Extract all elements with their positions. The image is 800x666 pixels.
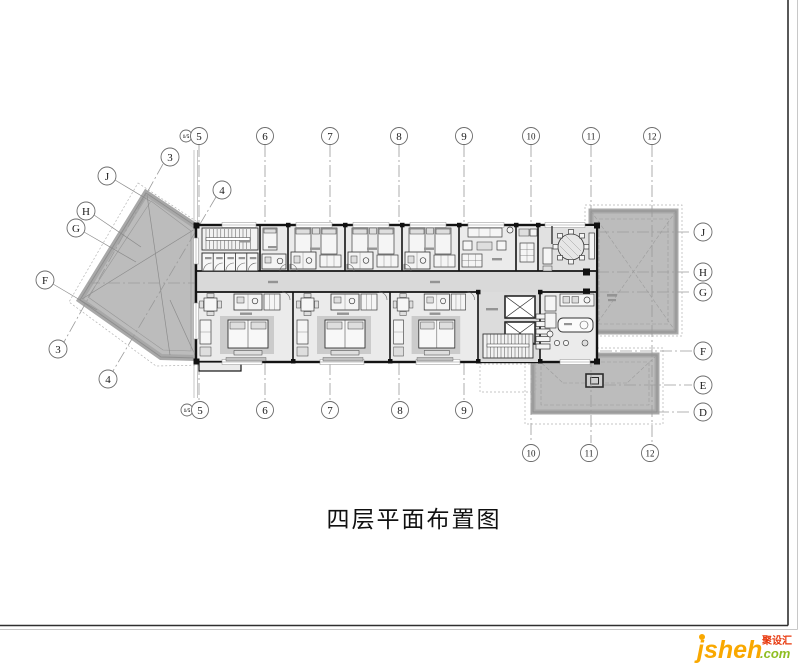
sofa <box>545 313 556 328</box>
svg-text:F: F <box>700 346 706 358</box>
floor-plan-canvas: 1/5 5 6 7 8 9 10 11 12 1/5 5 6 7 8 9 10 … <box>0 0 800 666</box>
watermark-logo: jsheh <box>694 636 762 664</box>
axis-bubble-top-10: 10 <box>523 128 540 145</box>
axis-bubble-right-H: H <box>694 263 712 281</box>
stair-left <box>202 228 258 250</box>
axis-bubble-bottom-5: 5 <box>192 402 209 419</box>
axis-bubble-top-8: 8 <box>391 128 408 145</box>
svg-text:1/5: 1/5 <box>184 408 191 414</box>
axis-bubble-bottom-10: 10 <box>523 445 540 462</box>
hall-label <box>486 308 498 310</box>
axis-bubble-bottom-9: 9 <box>456 402 473 419</box>
drawing-title: 四层平面布置图 <box>327 507 502 532</box>
svg-text:H: H <box>82 206 90 218</box>
armchair <box>497 241 506 250</box>
svg-text:12: 12 <box>646 449 655 459</box>
axis-bubble-left-J: J <box>98 167 116 185</box>
svg-text:9: 9 <box>461 405 467 417</box>
svg-text:10: 10 <box>527 132 537 142</box>
svg-text:F: F <box>42 275 48 287</box>
watermark-suffix: .com <box>760 646 791 661</box>
stool <box>554 340 559 345</box>
axis-bubble-right-E: E <box>694 376 712 394</box>
svg-text:9: 9 <box>461 131 467 143</box>
corridor <box>198 271 595 292</box>
roof-skylight <box>586 374 603 387</box>
svg-text:J: J <box>701 227 706 239</box>
watermark-logo-dot <box>699 634 705 640</box>
axis-bubble-left-4-top: 4 <box>213 181 231 199</box>
armchair <box>463 241 472 250</box>
sofa <box>468 228 502 237</box>
svg-text:4: 4 <box>219 185 225 197</box>
axis-bubble-top-12: 12 <box>644 128 661 145</box>
axis-bubble-top-6: 6 <box>257 128 274 145</box>
stair-label <box>240 240 250 243</box>
svg-text:12: 12 <box>648 132 657 142</box>
svg-text:4: 4 <box>105 374 111 386</box>
drawing-sheet: 1/5 5 6 7 8 9 10 11 12 1/5 5 6 7 8 9 10 … <box>0 0 800 666</box>
side-table <box>543 266 552 271</box>
svg-text:11: 11 <box>585 449 594 459</box>
sofa <box>545 296 556 311</box>
axis-bubble-top-7: 7 <box>322 128 339 145</box>
axis-bubble-bottom-12: 12 <box>642 445 659 462</box>
axis-bubble-bottom-8: 8 <box>392 402 409 419</box>
svg-text:6: 6 <box>262 405 268 417</box>
svg-text:8: 8 <box>397 405 403 417</box>
roof-label <box>607 294 617 297</box>
svg-text:5: 5 <box>196 131 202 143</box>
axis-bubble-right-D: D <box>694 403 712 421</box>
svg-text:D: D <box>699 407 707 419</box>
axis-bubble-top-5: 5 <box>191 128 208 145</box>
axis-bubble-top-11: 11 <box>583 128 600 145</box>
lower-terrace-outline <box>480 364 536 392</box>
axis-bubble-bottom-7: 7 <box>322 402 339 419</box>
room-label <box>492 258 502 260</box>
svg-text:J: J <box>105 171 110 183</box>
coffee-table <box>477 242 492 250</box>
axis-bubble-left-F: F <box>36 271 54 289</box>
stall-row <box>202 253 258 271</box>
pantry <box>519 229 537 262</box>
corridor-label <box>430 281 440 283</box>
svg-text:3: 3 <box>167 152 173 164</box>
stair-rail <box>487 344 529 347</box>
sideboard <box>589 233 595 259</box>
svg-text:7: 7 <box>327 131 333 143</box>
svg-text:10: 10 <box>527 449 537 459</box>
axis-bubble-right-F: F <box>694 342 712 360</box>
axis-bubble-bottom-6: 6 <box>257 402 274 419</box>
svg-text:11: 11 <box>587 132 596 142</box>
fixture <box>582 340 588 346</box>
side-table <box>547 331 553 337</box>
corridor-label <box>268 281 278 283</box>
axis-bubble-left-3-bottom: 3 <box>49 340 67 358</box>
sofa <box>543 248 552 264</box>
axis-bubble-bottom-11: 11 <box>581 445 598 462</box>
svg-text:G: G <box>72 223 80 235</box>
roof-label <box>608 299 616 301</box>
axis-bubble-top-9: 9 <box>456 128 473 145</box>
stool <box>563 340 568 345</box>
svg-text:6: 6 <box>262 131 268 143</box>
svg-text:G: G <box>699 287 707 299</box>
axis-bubble-left-3-top: 3 <box>161 148 179 166</box>
svg-text:3: 3 <box>55 344 61 356</box>
svg-text:8: 8 <box>396 131 402 143</box>
basin <box>584 297 590 303</box>
plant <box>507 227 513 233</box>
svg-text:E: E <box>700 380 707 392</box>
svg-text:H: H <box>699 267 707 279</box>
svg-text:1/5: 1/5 <box>183 134 190 140</box>
bath-label <box>564 323 572 325</box>
axis-bubble-left-G: G <box>67 219 85 237</box>
svg-text:5: 5 <box>197 405 203 417</box>
axis-bubble-right-G: G <box>694 283 712 301</box>
axis-bubble-left-4-bottom: 4 <box>99 370 117 388</box>
axis-bubble-left-H: H <box>77 202 95 220</box>
watermark: jsheh 聚设汇 .com <box>694 634 792 664</box>
svg-text:7: 7 <box>327 405 333 417</box>
axis-bubble-right-J: J <box>694 223 712 241</box>
